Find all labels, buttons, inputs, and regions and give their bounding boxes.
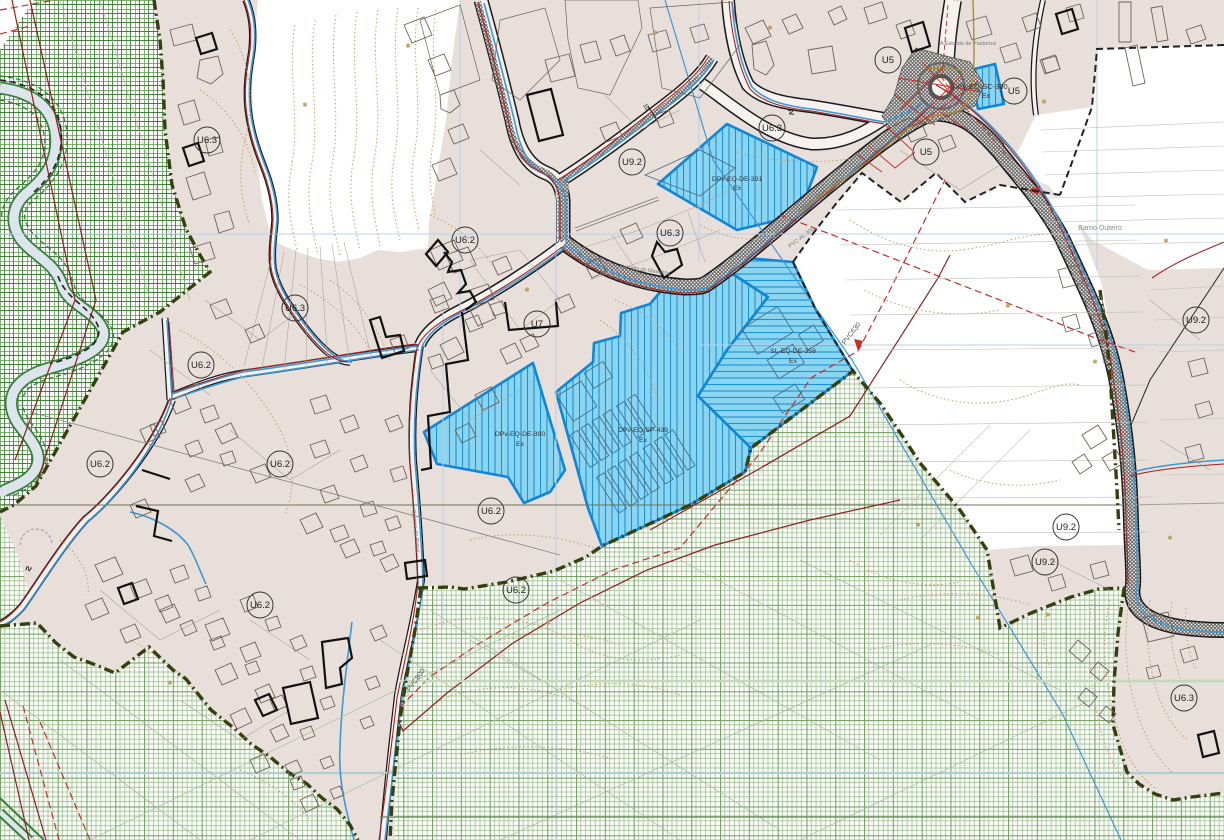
svg-text:✱: ✱ bbox=[1005, 302, 1011, 310]
svg-text:A Estrada de Pastoriza: A Estrada de Pastoriza bbox=[940, 41, 997, 47]
svg-text:DPv-EQ-SC-300: DPv-EQ-SC-300 bbox=[952, 82, 1007, 91]
svg-text:✱: ✱ bbox=[1092, 358, 1098, 366]
svg-text:U9.2: U9.2 bbox=[622, 157, 642, 168]
svg-text:U6.3: U6.3 bbox=[1174, 693, 1194, 704]
svg-text:Ex: Ex bbox=[789, 358, 798, 365]
svg-text:U9.2: U9.2 bbox=[1186, 315, 1206, 326]
svg-text:✱: ✱ bbox=[1041, 98, 1047, 106]
svg-text:U6.3: U6.3 bbox=[762, 123, 782, 134]
svg-text:✱: ✱ bbox=[975, 614, 981, 622]
svg-text:Ex: Ex bbox=[516, 441, 525, 448]
svg-text:U6.2: U6.2 bbox=[506, 585, 526, 596]
svg-text:U6.2: U6.2 bbox=[455, 235, 475, 246]
svg-text:✱: ✱ bbox=[545, 619, 551, 627]
svg-text:✱: ✱ bbox=[652, 29, 658, 37]
svg-text:DPv-EQ-SP-439: DPv-EQ-SP-439 bbox=[618, 427, 668, 434]
svg-text:U6.2: U6.2 bbox=[90, 459, 110, 470]
svg-text:U6.2: U6.2 bbox=[250, 600, 270, 611]
svg-text:SL-EQ-DE-358: SL-EQ-DE-358 bbox=[770, 348, 816, 355]
svg-text:DPv-EQ-DE-390: DPv-EQ-DE-390 bbox=[495, 431, 545, 438]
svg-text:U6.2: U6.2 bbox=[481, 506, 501, 517]
svg-text:✱: ✱ bbox=[167, 679, 173, 687]
svg-text:✱: ✱ bbox=[302, 101, 308, 109]
svg-text:U6.2: U6.2 bbox=[191, 360, 211, 371]
svg-text:✱: ✱ bbox=[767, 24, 773, 32]
svg-text:✱: ✱ bbox=[1163, 237, 1169, 245]
svg-text:U6.3: U6.3 bbox=[660, 228, 680, 239]
svg-text:U6.3: U6.3 bbox=[197, 135, 217, 146]
svg-text:U9.2: U9.2 bbox=[1035, 557, 1055, 568]
svg-text:U6.2: U6.2 bbox=[270, 459, 290, 470]
svg-text:Ex: Ex bbox=[982, 91, 991, 100]
svg-text:Barrio Outeiro: Barrio Outeiro bbox=[1078, 225, 1122, 232]
svg-text:Ex: Ex bbox=[639, 437, 648, 444]
svg-text:U5: U5 bbox=[1008, 86, 1020, 97]
svg-text:✱: ✱ bbox=[915, 521, 921, 529]
svg-text:U9.2: U9.2 bbox=[1056, 522, 1076, 533]
svg-text:Ex: Ex bbox=[733, 185, 742, 192]
svg-text:U5: U5 bbox=[920, 147, 932, 158]
svg-text:✱: ✱ bbox=[1045, 611, 1051, 619]
svg-text:U6.3: U6.3 bbox=[285, 303, 305, 314]
svg-text:✱: ✱ bbox=[524, 286, 530, 294]
svg-text:U5: U5 bbox=[882, 55, 894, 66]
svg-text:✱: ✱ bbox=[1167, 534, 1173, 542]
svg-text:✱: ✱ bbox=[405, 42, 411, 50]
svg-text:DPv-EQ-DE-391: DPv-EQ-DE-391 bbox=[712, 176, 762, 183]
svg-text:U7: U7 bbox=[531, 319, 543, 330]
